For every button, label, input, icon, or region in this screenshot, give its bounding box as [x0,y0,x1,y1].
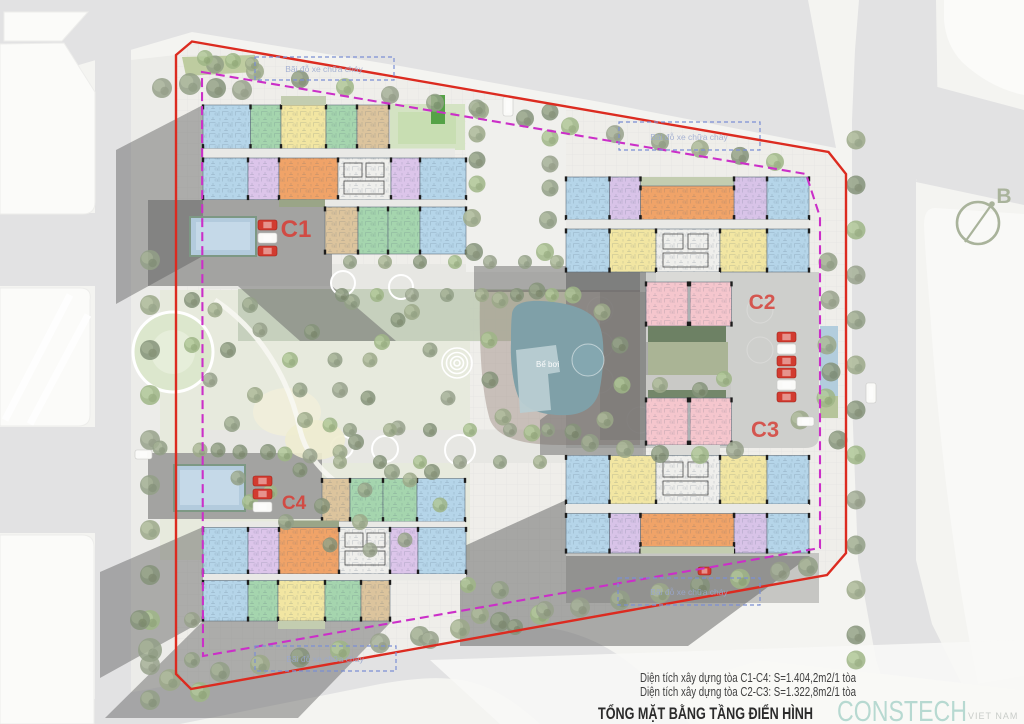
svg-text:Bãi đỗ xe chữa cháy: Bãi đỗ xe chữa cháy [286,654,364,664]
svg-text:C4: C4 [282,493,307,514]
svg-text:C2: C2 [749,291,776,314]
svg-text:Bãi đỗ xe chữa cháy: Bãi đỗ xe chữa cháy [650,132,728,142]
svg-text:CONSTECH: CONSTECH [837,696,967,724]
svg-text:C3: C3 [751,417,779,442]
svg-text:Bãi đỗ xe chữa cháy: Bãi đỗ xe chữa cháy [650,587,728,597]
svg-text:TỔNG MẶT BẰNG TẦNG ĐIỂN HÌNH: TỔNG MẶT BẰNG TẦNG ĐIỂN HÌNH [598,704,813,723]
svg-text:Diện tích xây dựng tòa C1-C4:: Diện tích xây dựng tòa C1-C4: S=1.404,2m… [640,671,856,685]
svg-text:B: B [996,185,1011,208]
svg-text:C1: C1 [281,216,312,243]
svg-text:Bể bơi: Bể bơi [536,360,560,369]
svg-text:Diện tích xây dựng tòa C2-C3:: Diện tích xây dựng tòa C2-C3: S=1.322,8m… [640,685,856,699]
svg-text:Bãi đỗ xe chữa cháy: Bãi đỗ xe chữa cháy [285,64,363,74]
svg-text:VIET NAM: VIET NAM [968,711,1018,721]
